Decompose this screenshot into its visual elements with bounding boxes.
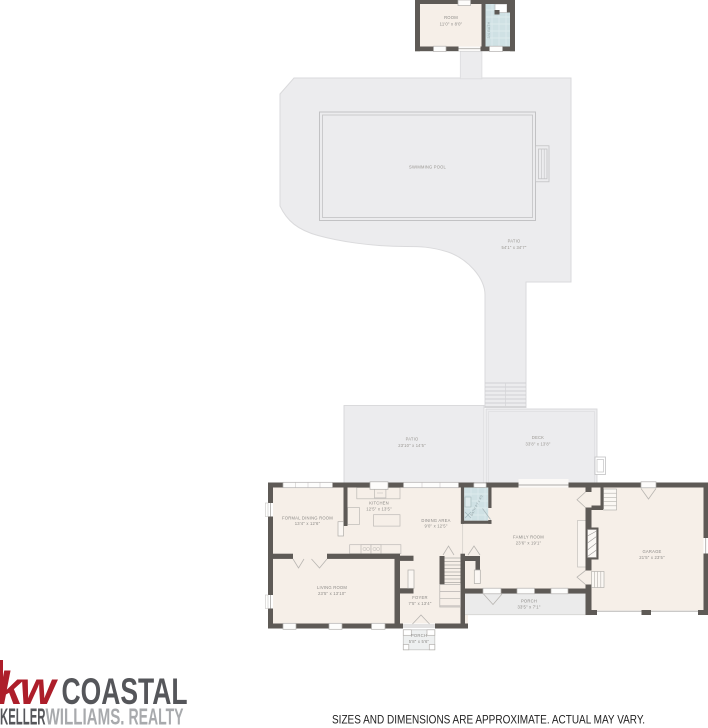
svg-text:DINING AREA: DINING AREA [421, 518, 450, 523]
svg-text:3/4 BATH: 3/4 BATH [487, 21, 491, 38]
svg-text:5'8" x 5'6": 5'8" x 5'6" [409, 639, 430, 644]
svg-text:9'0" x 12'5": 9'0" x 12'5" [424, 524, 447, 529]
svg-text:PATIO: PATIO [508, 239, 521, 244]
svg-text:REALTY: REALTY [129, 704, 184, 728]
svg-text:FAMILY ROOM: FAMILY ROOM [513, 535, 544, 540]
svg-text:ROOM: ROOM [444, 15, 458, 20]
svg-text:33'8" x 13'8": 33'8" x 13'8" [525, 442, 550, 447]
svg-text:LIVING ROOM: LIVING ROOM [317, 585, 347, 590]
svg-text:23'10" x 14'5": 23'10" x 14'5" [398, 443, 426, 448]
svg-text:7'5" x 13'4": 7'5" x 13'4" [408, 601, 431, 606]
svg-text:GARAGE: GARAGE [642, 549, 661, 554]
svg-text:54'1" x 34'7": 54'1" x 34'7" [501, 245, 526, 250]
svg-text:23'5" x 13'10": 23'5" x 13'10" [318, 591, 346, 596]
svg-text:KITCHEN: KITCHEN [369, 501, 389, 506]
svg-text:PATIO: PATIO [406, 437, 419, 442]
svg-text:PORCH: PORCH [521, 599, 537, 604]
svg-text:DECK: DECK [532, 435, 544, 440]
svg-text:23'6" x 19'1": 23'6" x 19'1" [516, 540, 542, 545]
svg-text:FORMAL DINING ROOM: FORMAL DINING ROOM [282, 516, 333, 521]
svg-text:FOYER: FOYER [412, 595, 427, 600]
svg-text:SWIMMING POOL: SWIMMING POOL [409, 165, 446, 170]
svg-text:21'5" x 23'5": 21'5" x 23'5" [639, 555, 665, 560]
svg-text:11'0" x 8'0": 11'0" x 8'0" [440, 22, 463, 27]
svg-text:12'5" x 13'5": 12'5" x 13'5" [366, 506, 392, 511]
svg-text:13'4" x 12'6": 13'4" x 12'6" [295, 521, 321, 526]
svg-text:WILLIAMS.: WILLIAMS. [46, 704, 125, 728]
svg-text:PORCH: PORCH [411, 633, 427, 638]
svg-text:KELLER: KELLER [0, 704, 46, 728]
svg-text:SIZES AND DIMENSIONS ARE APPRO: SIZES AND DIMENSIONS ARE APPROXIMATE. AC… [332, 713, 645, 727]
svg-text:33'5" x 7'1": 33'5" x 7'1" [517, 604, 540, 609]
